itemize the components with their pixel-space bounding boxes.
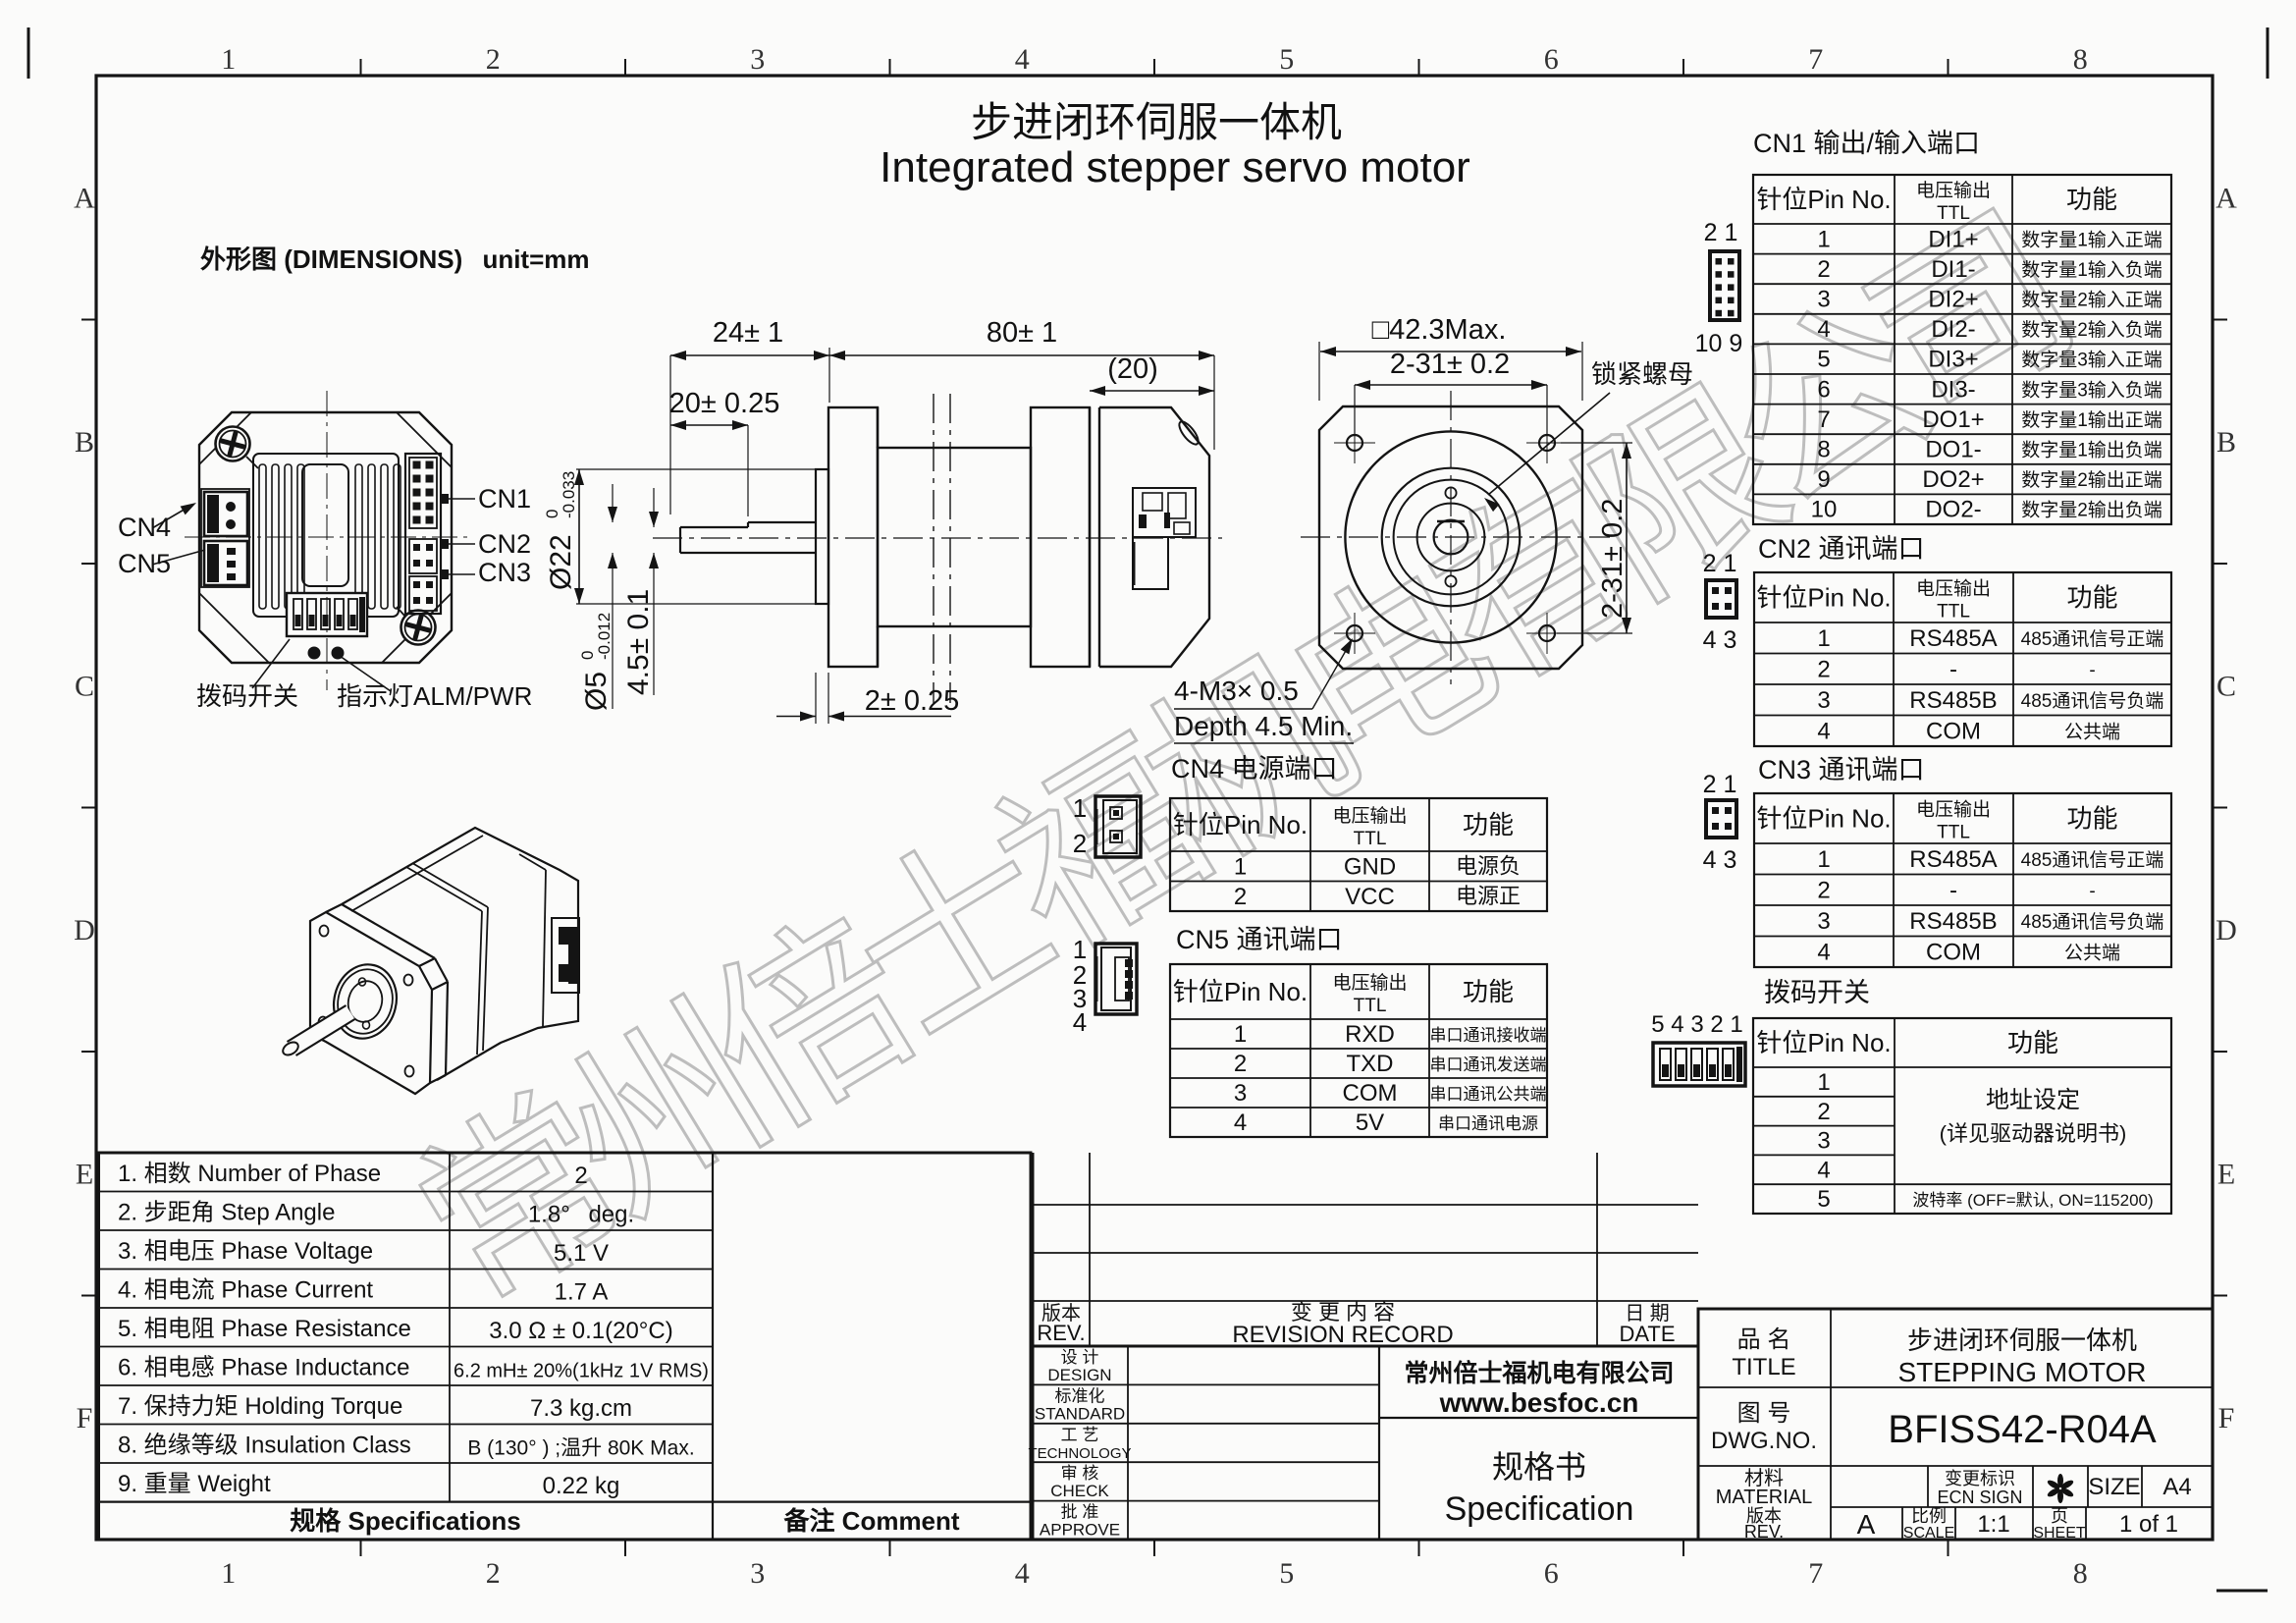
svg-text:CN4 电源端口: CN4 电源端口 (1171, 754, 1338, 784)
svg-text:针位Pin No.: 针位Pin No. (1756, 804, 1891, 834)
svg-text:3: 3 (1817, 1128, 1830, 1155)
svg-text:数字量2输入正端: 数字量2输入正端 (2021, 290, 2163, 311)
svg-text:TTL: TTL (1937, 823, 1970, 843)
svg-text:2-31± 0.2: 2-31± 0.2 (1597, 499, 1629, 619)
svg-text:1 of 1: 1 of 1 (2119, 1511, 2178, 1538)
svg-text:1: 1 (1817, 226, 1830, 252)
svg-text:针位Pin No.: 针位Pin No. (1173, 810, 1308, 839)
svg-text:TTL: TTL (1937, 602, 1970, 622)
svg-text:2: 2 (574, 1163, 587, 1189)
svg-text:7.3 kg.cm: 7.3 kg.cm (530, 1395, 632, 1422)
svg-text:8: 8 (1817, 437, 1830, 463)
svg-text:5: 5 (1817, 347, 1830, 373)
svg-text:批 准: 批 准 (1061, 1503, 1099, 1522)
svg-text:DATE: DATE (1619, 1322, 1675, 1346)
svg-text:步进闭环伺服一体机: 步进闭环伺服一体机 (1907, 1325, 2137, 1355)
svg-text:3: 3 (1234, 1080, 1247, 1107)
svg-text:E: E (2217, 1158, 2235, 1190)
svg-text:设 计: 设 计 (1061, 1348, 1099, 1367)
svg-text:3: 3 (1817, 287, 1830, 313)
svg-text:A: A (74, 182, 95, 214)
svg-text:TTL: TTL (1354, 996, 1387, 1016)
svg-text:2 1: 2 1 (1704, 219, 1738, 246)
svg-text:SIZE: SIZE (2088, 1474, 2140, 1500)
svg-text:VCC: VCC (1345, 884, 1395, 910)
svg-text:3.0 Ω ± 0.1(20°C): 3.0 Ω ± 0.1(20°C) (489, 1318, 672, 1344)
svg-text:REV.: REV. (1037, 1321, 1085, 1345)
svg-text:DI1+: DI1+ (1928, 226, 1978, 252)
svg-text:2: 2 (486, 43, 501, 76)
svg-text:8: 8 (2073, 43, 2088, 76)
svg-text:数字量3输入正端: 数字量3输入正端 (2021, 350, 2163, 371)
svg-text:E: E (76, 1158, 93, 1190)
svg-text:2-31± 0.2: 2-31± 0.2 (1390, 349, 1510, 380)
svg-text:DO2+: DO2+ (1922, 466, 1984, 493)
svg-text:标准化: 标准化 (1055, 1386, 1105, 1405)
svg-text:指示灯ALM/PWR: 指示灯ALM/PWR (337, 681, 532, 711)
svg-text:DO1-: DO1- (1925, 437, 1981, 463)
svg-text:串口通讯发送端: 串口通讯发送端 (1430, 1055, 1547, 1074)
svg-text:波特率 (OFF=默认, ON=115200): 波特率 (OFF=默认, ON=115200) (1912, 1191, 2153, 1210)
svg-text:STANDARD: STANDARD (1035, 1404, 1125, 1423)
svg-text:备注 Comment: 备注 Comment (782, 1506, 959, 1536)
svg-text:2 1: 2 1 (1703, 550, 1737, 577)
svg-text:1.8° deg.: 1.8° deg. (528, 1201, 634, 1227)
svg-text:COM: COM (1926, 718, 1981, 744)
svg-text:SHEET: SHEET (2033, 1525, 2086, 1542)
svg-text:外形图 (DIMENSIONS) unit=mm: 外形图 (DIMENSIONS) unit=mm (200, 244, 590, 274)
svg-text:常州倍士福机电有限公司: 常州倍士福机电有限公司 (1404, 1359, 1674, 1387)
svg-text:功能: 功能 (2066, 583, 2117, 613)
svg-text:1.7 A: 1.7 A (555, 1278, 609, 1305)
svg-text:功能: 功能 (2007, 1028, 2058, 1057)
svg-text:针位Pin No.: 针位Pin No. (1756, 1028, 1891, 1057)
svg-text:2 1: 2 1 (1703, 771, 1737, 798)
svg-text:5: 5 (1279, 1557, 1294, 1590)
svg-text:4: 4 (1234, 1109, 1247, 1136)
svg-text:1: 1 (1817, 846, 1830, 873)
svg-text:DO1+: DO1+ (1922, 406, 1984, 433)
svg-text:-0.033: -0.033 (560, 471, 578, 518)
svg-text:数字量1输入负端: 数字量1输入负端 (2021, 259, 2163, 281)
svg-text:7: 7 (1817, 406, 1830, 433)
svg-text:-: - (1949, 877, 1957, 903)
svg-text:电压输出: 电压输出 (1332, 972, 1407, 994)
svg-text:5.1 V: 5.1 V (554, 1240, 609, 1267)
svg-text:B: B (75, 426, 94, 459)
svg-text:BFISS42-R04A: BFISS42-R04A (1888, 1408, 2157, 1451)
svg-text:F: F (77, 1402, 93, 1434)
svg-text:C: C (2216, 670, 2236, 702)
svg-text:3: 3 (1817, 687, 1830, 714)
svg-text:5V: 5V (1356, 1109, 1384, 1136)
svg-text:6: 6 (1817, 376, 1830, 403)
svg-text:针位Pin No.: 针位Pin No. (1756, 583, 1891, 613)
svg-text:4.5± 0.1: 4.5± 0.1 (622, 589, 655, 695)
svg-text:485通讯信号正端: 485通讯信号正端 (2021, 849, 2164, 871)
svg-text:CN2: CN2 (478, 529, 531, 559)
svg-text:工 艺: 工 艺 (1061, 1426, 1099, 1444)
svg-text:2: 2 (1817, 1099, 1830, 1125)
svg-text:Depth 4.5 Min.: Depth 4.5 Min. (1174, 711, 1353, 741)
svg-text:DI3+: DI3+ (1928, 347, 1978, 373)
svg-text:REVISION RECORD: REVISION RECORD (1232, 1322, 1453, 1348)
svg-text:电压输出: 电压输出 (1916, 578, 1991, 600)
svg-text:7: 7 (1808, 1557, 1823, 1590)
svg-text:锁紧螺母: 锁紧螺母 (1591, 359, 1693, 389)
svg-text:RS485B: RS485B (1909, 908, 1997, 935)
svg-text:Specification: Specification (1445, 1490, 1634, 1528)
svg-text:1: 1 (221, 43, 236, 76)
svg-text:针位Pin No.: 针位Pin No. (1173, 977, 1308, 1006)
svg-text:7. 保持力矩 Holding Torque: 7. 保持力矩 Holding Torque (118, 1393, 402, 1420)
svg-text:24± 1: 24± 1 (713, 317, 783, 349)
svg-text:1: 1 (1234, 853, 1247, 880)
svg-text:4. 相电流 Phase Current: 4. 相电流 Phase Current (118, 1276, 373, 1303)
svg-text:CN1 输出/输入端口: CN1 输出/输入端口 (1753, 129, 1980, 158)
svg-text:RS485B: RS485B (1909, 687, 1997, 714)
svg-text:0.22 kg: 0.22 kg (543, 1473, 620, 1499)
svg-text:2: 2 (1817, 256, 1830, 283)
svg-text:2: 2 (1073, 829, 1087, 858)
svg-text:4: 4 (1817, 316, 1830, 343)
svg-text:STEPPING MOTOR: STEPPING MOTOR (1897, 1357, 2146, 1387)
svg-text:6: 6 (1544, 1557, 1559, 1590)
svg-text:功能: 功能 (2066, 185, 2117, 214)
svg-text:3: 3 (750, 1557, 765, 1590)
svg-text:审 核: 审 核 (1061, 1464, 1099, 1483)
svg-text:(20): (20) (1107, 353, 1158, 385)
svg-text:TTL: TTL (1354, 829, 1387, 849)
svg-text:□42.3Max.: □42.3Max. (1372, 314, 1507, 346)
svg-text:5: 5 (1279, 43, 1294, 76)
svg-text:A: A (1857, 1509, 1876, 1540)
svg-text:DI3-: DI3- (1931, 376, 1975, 403)
svg-text:8: 8 (2073, 1557, 2088, 1590)
svg-text:20± 0.25: 20± 0.25 (669, 388, 780, 419)
svg-text:2: 2 (1234, 884, 1247, 910)
svg-text:COM: COM (1343, 1080, 1398, 1107)
svg-text:CN3 通讯端口: CN3 通讯端口 (1758, 755, 1925, 784)
svg-text:6.2 mH± 20%(1kHz 1V RMS): 6.2 mH± 20%(1kHz 1V RMS) (454, 1360, 709, 1381)
svg-text:5: 5 (1817, 1186, 1830, 1213)
svg-text:www.besfoc.cn: www.besfoc.cn (1439, 1387, 1639, 1418)
svg-text:1: 1 (1073, 793, 1087, 823)
svg-text:品 名: 品 名 (1737, 1326, 1791, 1353)
svg-text:DESIGN: DESIGN (1047, 1366, 1111, 1384)
svg-text:B (130° ) ;温升 80K Max.: B (130° ) ;温升 80K Max. (467, 1436, 694, 1459)
svg-text:RS485A: RS485A (1909, 846, 1997, 873)
svg-text:8. 绝缘等级 Insulation Class: 8. 绝缘等级 Insulation Class (118, 1432, 411, 1458)
svg-text:COM: COM (1926, 939, 1981, 965)
svg-text:CN2 通讯端口: CN2 通讯端口 (1758, 534, 1925, 564)
svg-text:1: 1 (221, 1557, 236, 1590)
svg-text:变更标识: 变更标识 (1945, 1469, 2015, 1488)
svg-text:4: 4 (1817, 939, 1830, 965)
svg-text:4: 4 (1073, 1007, 1087, 1037)
svg-text:TTL: TTL (1937, 203, 1970, 224)
svg-text:数字量2输出正端: 数字量2输出正端 (2021, 469, 2163, 491)
svg-text:CN3: CN3 (478, 558, 531, 587)
svg-text:GND: GND (1344, 853, 1396, 880)
svg-text:2: 2 (1817, 656, 1830, 682)
svg-text:数字量1输入正端: 数字量1输入正端 (2021, 229, 2163, 250)
svg-text:REV.: REV. (1744, 1522, 1784, 1542)
svg-text:SCALE: SCALE (1903, 1525, 1954, 1542)
svg-text:2: 2 (1817, 877, 1830, 903)
svg-text:2. 步距角 Step Angle: 2. 步距角 Step Angle (118, 1199, 335, 1225)
svg-text:规格书: 规格书 (1492, 1449, 1586, 1485)
svg-text:TITLE: TITLE (1732, 1354, 1795, 1380)
svg-text:2± 0.25: 2± 0.25 (865, 685, 960, 717)
svg-text:功能: 功能 (1463, 977, 1514, 1006)
svg-text:A4: A4 (2163, 1474, 2191, 1500)
svg-text:6: 6 (1544, 43, 1559, 76)
svg-text:-: - (2089, 660, 2095, 680)
svg-text:CN4: CN4 (118, 513, 171, 542)
svg-text:DI2+: DI2+ (1928, 287, 1978, 313)
svg-text:DI1-: DI1- (1931, 256, 1975, 283)
svg-text:485通讯信号负端: 485通讯信号负端 (2021, 911, 2164, 933)
svg-text:-: - (2089, 881, 2095, 901)
svg-text:步进闭环伺服一体机: 步进闭环伺服一体机 (971, 99, 1342, 145)
svg-text:4: 4 (1817, 1157, 1830, 1183)
svg-text:3. 相电压 Phase Voltage: 3. 相电压 Phase Voltage (118, 1238, 373, 1265)
svg-text:Ø5: Ø5 (580, 672, 613, 711)
svg-text:Integrated stepper servo motor: Integrated stepper servo motor (880, 143, 1470, 191)
svg-text:(详见驱动器说明书): (详见驱动器说明书) (1940, 1121, 2127, 1146)
svg-text:电压输出: 电压输出 (1916, 180, 1991, 201)
svg-text:D: D (74, 914, 95, 947)
svg-text:1: 1 (1817, 625, 1830, 652)
svg-text:电压输出: 电压输出 (1916, 799, 1991, 821)
svg-text:数字量3输入负端: 数字量3输入负端 (2021, 379, 2163, 401)
svg-text:2: 2 (486, 1557, 501, 1590)
svg-text:10 9: 10 9 (1695, 330, 1743, 357)
svg-text:4 3: 4 3 (1703, 626, 1737, 654)
svg-text:拨码开关: 拨码开关 (1764, 978, 1870, 1007)
svg-text:规格 Specifications: 规格 Specifications (290, 1506, 521, 1536)
svg-text:485通讯信号正端: 485通讯信号正端 (2021, 628, 2164, 650)
svg-text:地址设定: 地址设定 (1986, 1087, 2080, 1113)
svg-text:数字量2输出负端: 数字量2输出负端 (2021, 500, 2163, 521)
svg-text:5. 相电阻 Phase Resistance: 5. 相电阻 Phase Resistance (118, 1316, 411, 1342)
svg-text:CN1: CN1 (478, 484, 531, 514)
svg-text:9. 重量 Weight: 9. 重量 Weight (118, 1471, 271, 1497)
svg-text:3: 3 (1817, 908, 1830, 935)
svg-text:图 号: 图 号 (1737, 1400, 1791, 1427)
svg-text:3: 3 (750, 43, 765, 76)
svg-text:APPROVE: APPROVE (1040, 1521, 1120, 1540)
svg-text:数字量1输出正端: 数字量1输出正端 (2021, 409, 2163, 431)
svg-text:电源负: 电源负 (1456, 853, 1521, 878)
svg-text:Ø22: Ø22 (545, 534, 577, 590)
svg-text:ECN SIGN: ECN SIGN (1937, 1488, 2022, 1507)
svg-text:拨码开关: 拨码开关 (196, 681, 298, 711)
svg-text:-: - (1949, 656, 1957, 682)
svg-text:公共端: 公共端 (2064, 721, 2120, 742)
svg-text:1: 1 (1234, 1021, 1247, 1048)
svg-text:CN5: CN5 (118, 549, 171, 578)
svg-text:CHECK: CHECK (1050, 1482, 1109, 1500)
svg-text:A: A (2216, 182, 2237, 214)
svg-text:DWG.NO.: DWG.NO. (1711, 1428, 1817, 1454)
svg-text:F: F (2218, 1402, 2235, 1434)
svg-text:串口通讯公共端: 串口通讯公共端 (1430, 1085, 1547, 1104)
svg-text:公共端: 公共端 (2064, 942, 2120, 963)
svg-text:6. 相电感 Phase Inductance: 6. 相电感 Phase Inductance (118, 1354, 410, 1380)
svg-text:-0.012: -0.012 (595, 613, 614, 660)
svg-text:页: 页 (2051, 1506, 2068, 1526)
svg-text:4 3: 4 3 (1703, 846, 1737, 874)
svg-text:C: C (75, 670, 94, 702)
svg-text:DO2-: DO2- (1925, 497, 1981, 523)
svg-text:5 4 3 2 1: 5 4 3 2 1 (1651, 1011, 1742, 1038)
svg-text:TXD: TXD (1347, 1051, 1394, 1077)
svg-text:电源正: 电源正 (1456, 884, 1521, 908)
svg-text:TECHNOLOGY: TECHNOLOGY (1028, 1445, 1131, 1462)
svg-text:功能: 功能 (2066, 804, 2117, 834)
svg-text:B: B (2216, 426, 2236, 459)
svg-text:数字量1输出负端: 数字量1输出负端 (2021, 440, 2163, 461)
svg-text:功能: 功能 (1463, 810, 1514, 839)
svg-text:串口通讯电源: 串口通讯电源 (1438, 1114, 1538, 1133)
svg-text:RXD: RXD (1345, 1021, 1395, 1048)
svg-text:4-M3× 0.5: 4-M3× 0.5 (1174, 676, 1299, 706)
svg-text:RS485A: RS485A (1909, 625, 1997, 652)
svg-text:CN5 通讯端口: CN5 通讯端口 (1176, 925, 1343, 954)
svg-text:80± 1: 80± 1 (987, 317, 1057, 349)
svg-text:电压输出: 电压输出 (1332, 805, 1407, 827)
svg-text:针位Pin No.: 针位Pin No. (1756, 185, 1891, 214)
svg-text:DI2-: DI2- (1931, 316, 1975, 343)
svg-text:串口通讯接收端: 串口通讯接收端 (1430, 1026, 1547, 1045)
svg-text:D: D (2216, 914, 2237, 947)
svg-text:数字量2输入负端: 数字量2输入负端 (2021, 319, 2163, 341)
svg-text:比例: 比例 (1911, 1506, 1947, 1526)
svg-text:9: 9 (1817, 466, 1830, 493)
svg-text:MATERIAL: MATERIAL (1716, 1487, 1813, 1508)
svg-text:1. 相数 Number of Phase: 1. 相数 Number of Phase (118, 1161, 381, 1187)
svg-text:2: 2 (1234, 1051, 1247, 1077)
svg-text:10: 10 (1811, 497, 1838, 523)
svg-text:485通讯信号负端: 485通讯信号负端 (2021, 690, 2164, 712)
svg-text:7: 7 (1808, 43, 1823, 76)
svg-text:4: 4 (1015, 1557, 1030, 1590)
svg-text:4: 4 (1817, 718, 1830, 744)
svg-text:4: 4 (1015, 43, 1030, 76)
svg-text:1:1: 1:1 (1977, 1511, 2009, 1538)
svg-text:1: 1 (1817, 1069, 1830, 1096)
